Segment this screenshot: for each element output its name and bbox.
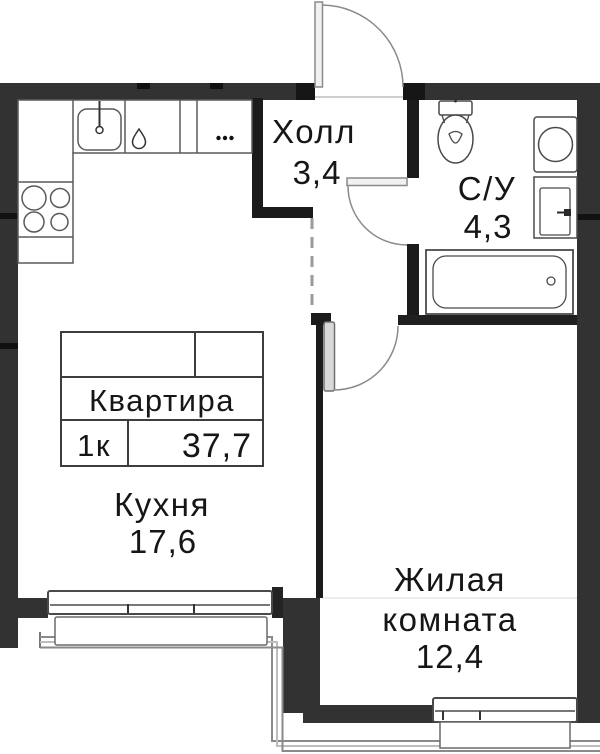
- wall-right: [577, 100, 600, 723]
- bathroom-door-leaf: [347, 178, 407, 186]
- hall-label: Холл: [272, 113, 356, 150]
- wall-bathroom-left-upper: [407, 100, 419, 178]
- entrance-door-leaf: [315, 2, 323, 87]
- wash-basin-icon: [534, 177, 577, 238]
- hall-area: 3,4: [293, 154, 342, 191]
- wall-kitchen-bottom-right: [272, 587, 283, 618]
- wall-joint: [0, 343, 18, 349]
- wall-left: [0, 100, 18, 648]
- washing-machine-icon: [534, 117, 577, 172]
- wall-jamb-left: [296, 83, 315, 100]
- living-door-arc: [334, 326, 398, 390]
- wall-top-right: [403, 83, 600, 100]
- counter-dots-icon: [216, 136, 233, 140]
- wall-bathroom-left-lower: [407, 244, 419, 315]
- kitchen-window-sill: [55, 617, 267, 645]
- kitchen-label: Кухня: [114, 486, 210, 523]
- living-area: 12,4: [416, 638, 484, 675]
- living-label-line2: комната: [382, 601, 517, 638]
- bathtub-icon: [426, 250, 573, 314]
- wall-kitchen-living-partition: [316, 313, 323, 598]
- kitchen-faucet-dot: [96, 127, 103, 134]
- living-door-leaf: [324, 322, 335, 391]
- unit-card-rooms-count: 1к: [77, 428, 111, 463]
- wall-top-left: [0, 83, 315, 100]
- bathroom-area: 4,3: [464, 208, 513, 245]
- wall-hall-left: [252, 98, 263, 218]
- kitchen-counter: [18, 100, 252, 263]
- living-label-line1: Жилая: [394, 561, 506, 598]
- bathroom-door-arc: [348, 186, 407, 245]
- unit-card-total-area: 37,7: [182, 427, 252, 465]
- kitchen-window: [48, 591, 272, 614]
- unit-card-title: Квартира: [89, 383, 235, 418]
- wall-joint: [210, 83, 223, 89]
- living-window-sill: [440, 722, 570, 748]
- living-window: [433, 698, 577, 722]
- toilet-icon: [438, 100, 473, 164]
- wall-step: [283, 598, 320, 713]
- wall-joint: [0, 213, 18, 219]
- wall-joint: [577, 214, 600, 220]
- floor-plan: Квартира 1к 37,7 Холл 3,4 С/У 4,3 Кухня …: [0, 0, 600, 754]
- wall-joint: [137, 83, 150, 89]
- entrance-door-arc: [322, 5, 403, 87]
- floor-plan-svg: Квартира 1к 37,7 Холл 3,4 С/У 4,3 Кухня …: [0, 0, 600, 754]
- wall-jamb-right: [403, 83, 425, 100]
- doors: [312, 2, 407, 391]
- kitchen-area: 17,6: [129, 523, 197, 560]
- wall-bathroom-bottom: [398, 315, 577, 325]
- bathroom-label: С/У: [458, 170, 516, 207]
- unit-card: Квартира 1к 37,7: [61, 332, 263, 466]
- wall-kitchen-bottom-left: [18, 598, 48, 618]
- wall-hall-stub: [252, 207, 313, 218]
